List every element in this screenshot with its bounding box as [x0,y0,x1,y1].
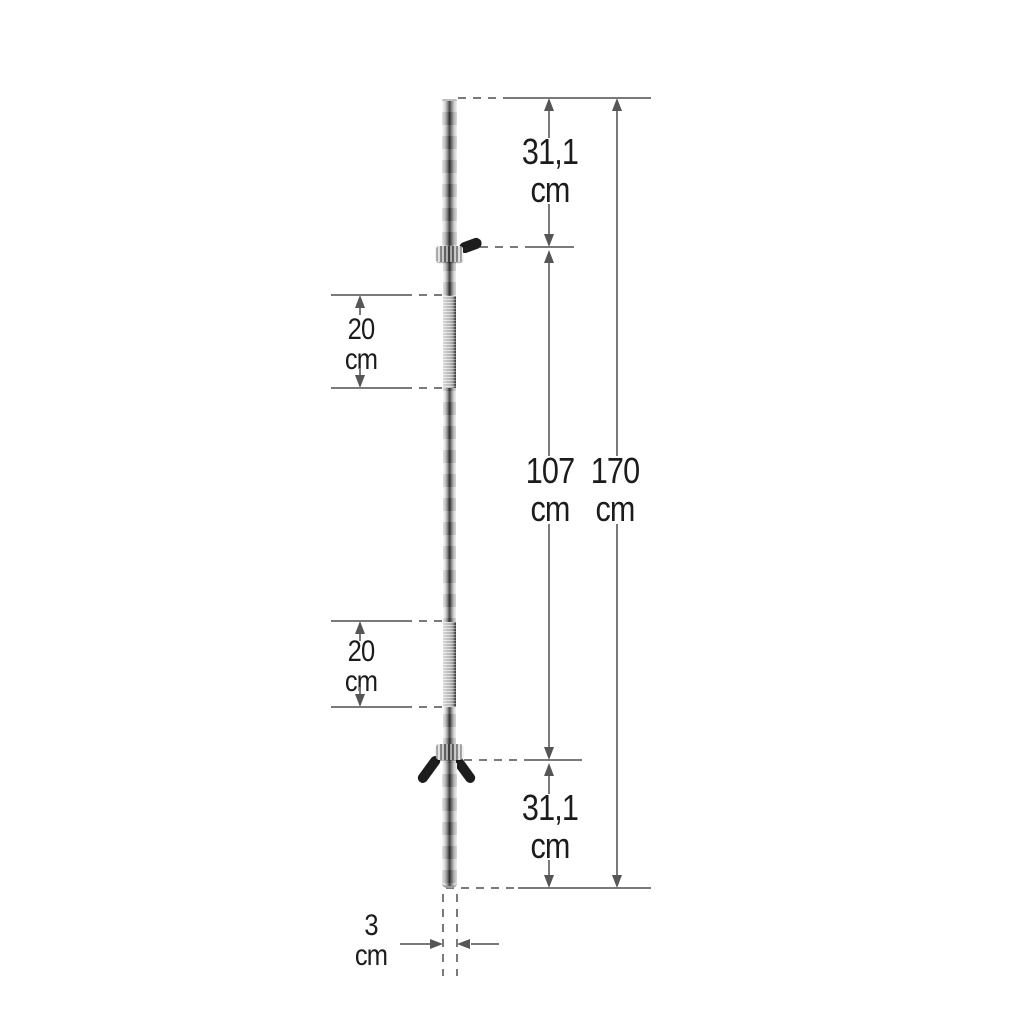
ext-line-diameter-right-dashed [456,894,458,976]
ext-line-upper-grip-top-dashed [404,294,443,296]
bar-sleeve-bottom [442,763,457,888]
dim-value: 107 [526,452,575,490]
dim-line [359,687,361,694]
dim-line [400,943,430,945]
dim-label-bottom-section: 31,1 cm [522,789,578,865]
arrow-down-icon [355,375,365,388]
ext-line-bar-top [506,97,651,99]
dim-line [548,204,550,234]
arrow-up-icon [612,98,622,111]
dim-line [616,524,618,875]
ext-line-upper-grip-top [331,294,404,296]
dim-value: 20 [345,315,377,345]
arrow-down-icon [355,694,365,707]
dim-unit: cm [345,667,377,697]
dim-unit: cm [522,171,578,209]
ext-line-upper-grip-bottom-dashed [404,387,443,389]
dim-value: 170 [591,452,640,490]
arrow-down-icon [544,747,554,760]
dim-label-grip-upper: 20 cm [345,315,377,375]
arrow-up-icon [544,250,554,263]
ext-line-diameter-left-dashed [442,894,444,976]
ext-line-lower-grip-bottom [331,706,404,708]
dim-line [359,368,361,375]
dim-label-shaft: 107 cm [526,452,575,528]
arrow-down-icon [544,875,554,888]
arrow-down-icon [544,234,554,247]
ext-line-upper-grip-bottom [331,387,404,389]
dim-unit: cm [522,827,578,865]
ext-line-lower-collar-dashed [464,759,524,761]
dim-line [548,860,550,875]
dim-line [548,263,550,456]
dim-unit: cm [345,345,377,375]
ext-line-upper-collar-dashed [480,246,532,248]
dim-unit: cm [591,490,640,528]
dim-value: 31,1 [522,133,578,171]
bar-sleeve-top [442,99,457,247]
dim-value: 20 [345,637,377,667]
dim-unit: cm [355,941,387,971]
ext-line-bar-top-dashed [458,97,506,99]
arrow-down-icon [612,875,622,888]
arrow-up-icon [544,98,554,111]
ext-line-lower-grip-bottom-dashed [404,706,443,708]
dim-label-top-section: 31,1 cm [522,133,578,209]
knurled-grip-lower [443,622,456,707]
dim-label-grip-lower: 20 cm [345,637,377,697]
dim-value: 3 [355,911,387,941]
barbell-dimension-diagram: 31,1 cm 107 cm 31,1 cm 170 cm [0,0,1024,1024]
arrow-up-icon [544,763,554,776]
dim-line [548,524,550,747]
arrow-left-icon [457,939,470,949]
dim-line [616,111,618,456]
dim-value: 31,1 [522,789,578,827]
dim-line [471,943,499,945]
spring-collar-lower [436,744,463,760]
ext-line-bar-bottom-dashed [446,887,518,889]
knurled-grip-upper [443,296,456,388]
dim-label-bar-diameter: 3 cm [355,911,387,971]
spring-collar-upper [436,246,463,262]
ext-line-bar-bottom [518,887,651,889]
arrow-up-icon [355,295,365,308]
dim-label-total-length: 170 cm [591,452,640,528]
arrow-right-icon [430,939,443,949]
ext-line-lower-grip-top [331,620,404,622]
dim-unit: cm [526,490,575,528]
arrow-up-icon [355,621,365,634]
ext-line-lower-grip-top-dashed [404,620,443,622]
